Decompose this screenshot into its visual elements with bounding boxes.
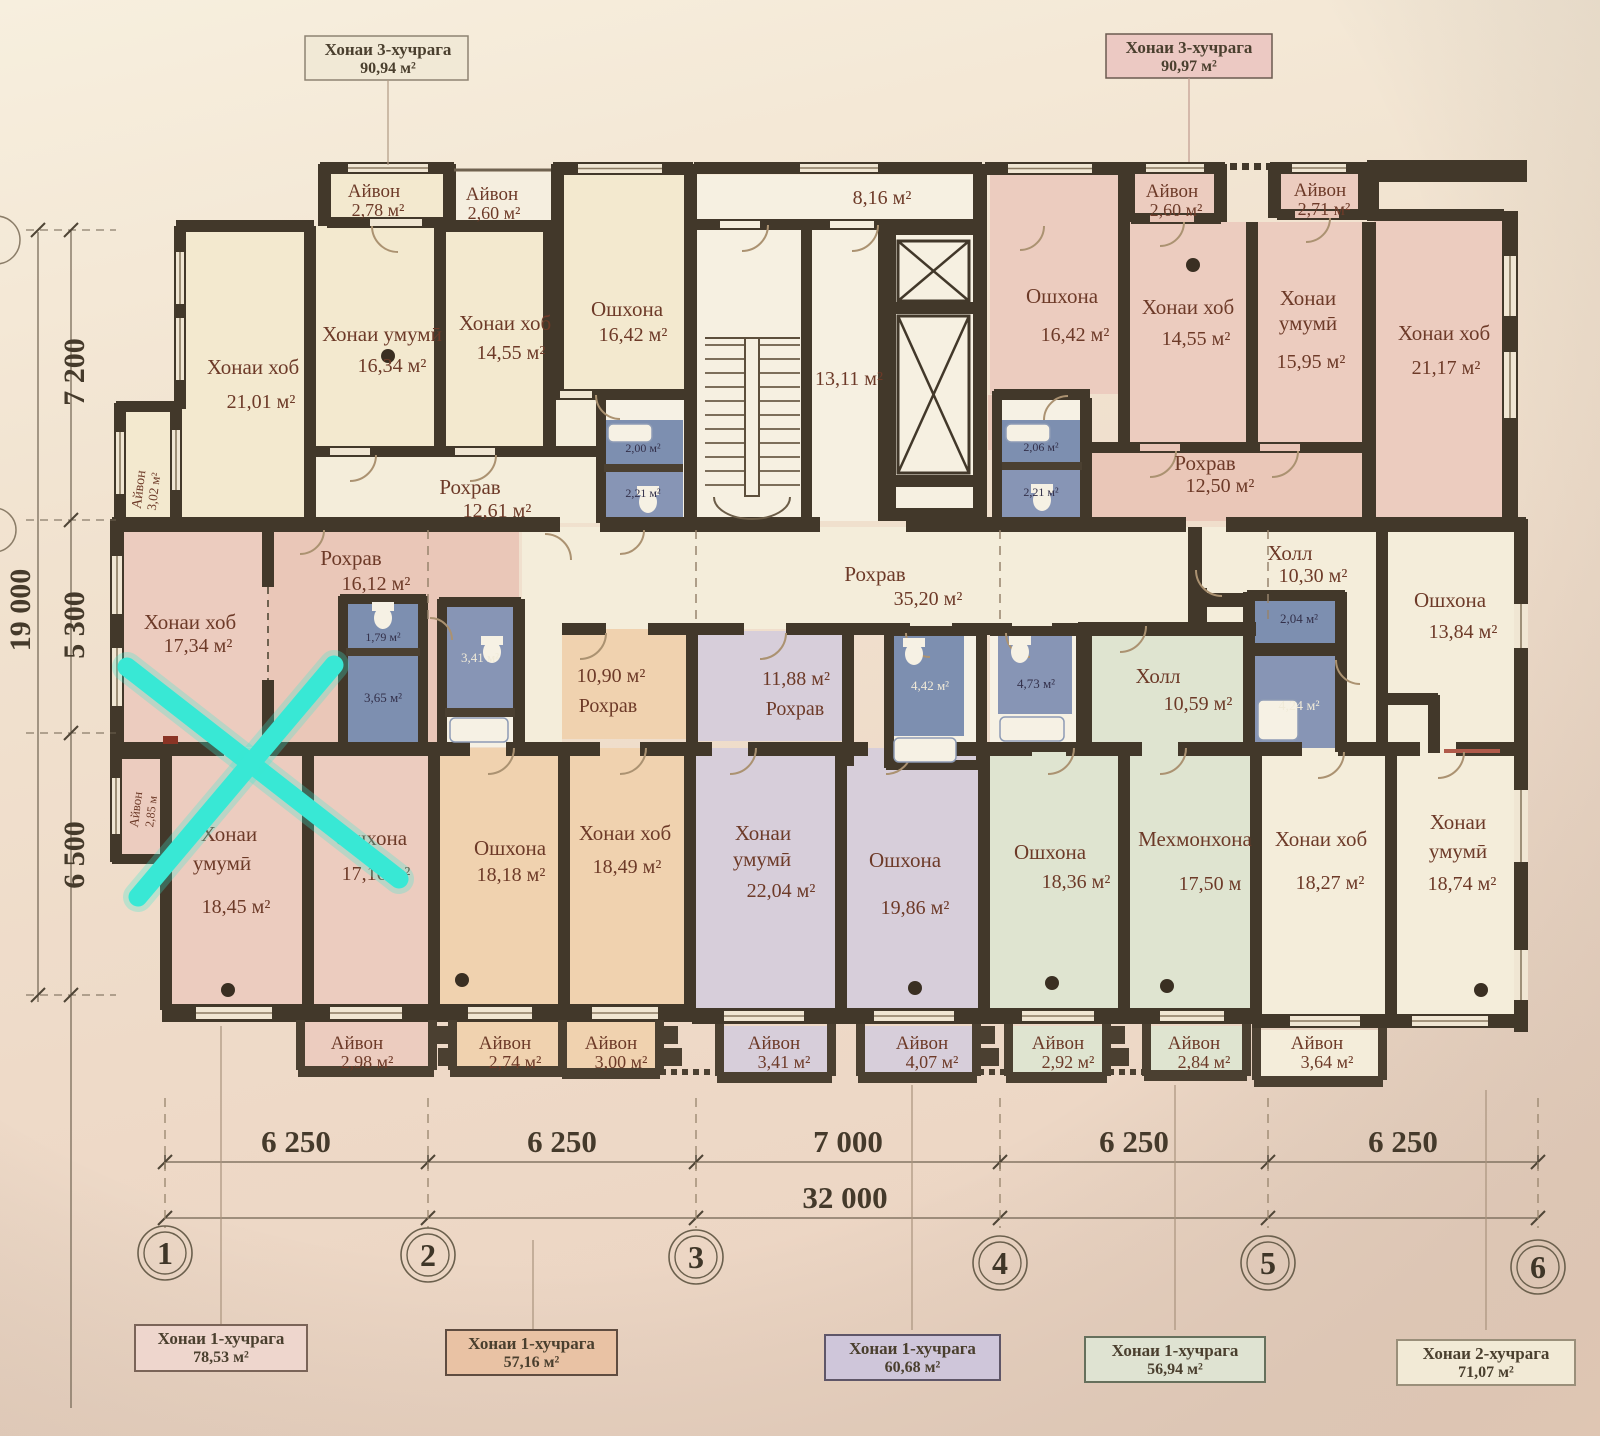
svg-text:Хонаи хоб: Хонаи хоб [1398,321,1490,345]
svg-text:Хонаи хоб: Хонаи хоб [144,610,236,634]
svg-text:17,50 м: 17,50 м [1179,873,1242,895]
svg-text:Мехмонхона: Мехмонхона [1138,827,1252,851]
svg-text:3,64 м²: 3,64 м² [1301,1052,1354,1072]
svg-text:2,00 м²: 2,00 м² [625,441,661,455]
svg-text:16,42 м²: 16,42 м² [599,324,668,346]
svg-text:21,17 м²: 21,17 м² [1412,357,1481,379]
svg-text:Хонаи: Хонаи [735,821,791,845]
svg-text:2,04 м²: 2,04 м² [1280,611,1318,626]
svg-text:6 250: 6 250 [1099,1124,1169,1159]
svg-text:90,97 м²: 90,97 м² [1161,58,1217,75]
svg-text:60,68 м²: 60,68 м² [885,1359,941,1376]
svg-text:5: 5 [1260,1245,1276,1281]
svg-text:2,60 м²: 2,60 м² [468,203,521,223]
svg-text:Холл: Холл [1267,541,1312,565]
svg-text:Айвон: Айвон [479,1033,531,1054]
svg-text:57,16 м²: 57,16 м² [504,1354,560,1371]
svg-text:Ошхона: Ошхона [591,297,664,321]
svg-text:4,42 м²: 4,42 м² [911,678,949,693]
svg-text:2,21 м²: 2,21 м² [625,486,661,500]
svg-text:18,18 м²: 18,18 м² [477,864,546,886]
svg-text:6 250: 6 250 [261,1124,331,1159]
svg-text:6 250: 6 250 [1368,1124,1438,1159]
svg-text:4,24 м²: 4,24 м² [1278,699,1319,714]
svg-text:Рохрав: Рохрав [439,475,500,499]
svg-text:2,84 м²: 2,84 м² [1178,1052,1231,1072]
svg-text:Айвон: Айвон [348,181,400,202]
svg-text:3,65 м²: 3,65 м² [364,690,402,705]
svg-text:Хонаи 1-хучрага: Хонаи 1-хучрага [849,1339,976,1358]
svg-text:Ошхона: Ошхона [1414,588,1487,612]
svg-text:Айвон: Айвон [1294,180,1346,201]
svg-text:Холл: Холл [1135,664,1180,688]
svg-text:Хонаи хоб: Хонаи хоб [579,821,671,845]
svg-text:Хонаи 1-хучрага: Хонаи 1-хучрага [468,1334,595,1353]
svg-text:Рохрав: Рохрав [766,698,824,720]
svg-text:11,88 м²: 11,88 м² [762,668,830,690]
svg-text:умумӣ: умумӣ [1429,839,1487,863]
svg-text:18,74 м²: 18,74 м² [1428,873,1497,895]
svg-text:2,74 м²: 2,74 м² [489,1052,542,1072]
svg-text:2,21 м²: 2,21 м² [1023,485,1059,499]
svg-text:6 500: 6 500 [58,821,91,889]
svg-text:2,92 м²: 2,92 м² [1042,1052,1095,1072]
svg-text:10,90 м²: 10,90 м² [577,665,646,687]
svg-text:22,04 м²: 22,04 м² [747,880,816,902]
svg-text:21,01 м²: 21,01 м² [227,391,296,413]
svg-text:Айвон: Айвон [466,184,518,205]
svg-text:7 200: 7 200 [58,338,91,406]
svg-text:2,71 м²: 2,71 м² [1298,199,1351,219]
svg-text:19 000: 19 000 [4,569,37,652]
svg-text:8,16 м²: 8,16 м² [853,187,912,209]
svg-text:Рохрав: Рохрав [1174,451,1235,475]
svg-text:18,45 м²: 18,45 м² [202,896,271,918]
svg-text:Хонаи 2-хучрага: Хонаи 2-хучрага [1423,1344,1550,1363]
svg-text:Айвон: Айвон [1168,1033,1220,1054]
svg-text:Айвон: Айвон [896,1033,948,1054]
svg-text:16,42 м²: 16,42 м² [1041,324,1110,346]
svg-text:Айвон: Айвон [1032,1033,1084,1054]
svg-text:1: 1 [157,1235,173,1271]
svg-text:Хонаи хоб: Хонаи хоб [1142,295,1234,319]
svg-text:Хонаи хоб: Хонаи хоб [459,311,551,335]
svg-text:Ошхона: Ошхона [869,848,942,872]
svg-text:Айвон: Айвон [331,1033,383,1054]
svg-text:2,78 м²: 2,78 м² [352,200,405,220]
svg-text:Ошхона: Ошхона [474,836,547,860]
svg-text:10,59 м²: 10,59 м² [1164,693,1233,715]
svg-text:14,55 м²: 14,55 м² [1162,328,1231,350]
svg-text:90,94 м²: 90,94 м² [360,60,416,77]
svg-text:17,34 м²: 17,34 м² [164,635,233,657]
svg-text:19,86 м²: 19,86 м² [881,897,950,919]
svg-text:16,34 м²: 16,34 м² [358,355,427,377]
svg-text:Хонаи 1-хучрага: Хонаи 1-хучрага [158,1329,285,1348]
svg-text:Рохрав: Рохрав [844,562,905,586]
svg-text:Айвон: Айвон [1291,1033,1343,1054]
svg-text:Хонаи умумӣ: Хонаи умумӣ [322,322,442,346]
svg-text:5 300: 5 300 [58,591,91,659]
svg-text:4,07 м²: 4,07 м² [906,1052,959,1072]
svg-text:35,20 м²: 35,20 м² [894,588,963,610]
svg-text:Ошхона: Ошхона [1014,840,1087,864]
svg-text:13,11 м²: 13,11 м² [815,368,883,390]
svg-text:Хонаи хоб: Хонаи хоб [207,355,299,379]
svg-text:6: 6 [1530,1249,1546,1285]
svg-text:Рохрав: Рохрав [320,546,381,570]
svg-text:13,84 м²: 13,84 м² [1429,621,1498,643]
svg-text:Айвон: Айвон [585,1033,637,1054]
svg-text:15,95 м²: 15,95 м² [1277,351,1346,373]
svg-text:7 000: 7 000 [813,1124,883,1159]
svg-text:10,30 м²: 10,30 м² [1279,565,1348,587]
svg-text:Хонаи 1-хучрага: Хонаи 1-хучрага [1112,1341,1239,1360]
svg-text:2: 2 [420,1237,436,1273]
svg-text:Хонаи: Хонаи [1280,286,1336,310]
svg-text:18,27 м²: 18,27 м² [1296,872,1365,894]
svg-text:12,61 м²: 12,61 м² [463,500,532,522]
svg-text:Хонаи хоб: Хонаи хоб [1275,827,1367,851]
svg-text:4: 4 [992,1245,1008,1281]
svg-text:3: 3 [688,1239,704,1275]
svg-text:1,79 м²: 1,79 м² [365,630,401,644]
svg-text:3,00 м²: 3,00 м² [595,1052,648,1072]
svg-text:умумӣ: умумӣ [1279,311,1337,335]
svg-text:Айвон: Айвон [748,1033,800,1054]
svg-text:14,55 м²: 14,55 м² [477,342,546,364]
svg-text:умумӣ: умумӣ [733,847,791,871]
svg-text:2,98 м²: 2,98 м² [341,1052,394,1072]
svg-text:18,36 м²: 18,36 м² [1042,871,1111,893]
svg-text:32 000: 32 000 [802,1180,887,1215]
svg-text:2,60 м²: 2,60 м² [1150,200,1203,220]
svg-text:Айвон: Айвон [1146,181,1198,202]
svg-text:18,49 м²: 18,49 м² [593,856,662,878]
svg-text:Рохрав: Рохрав [579,695,637,717]
svg-text:12,50 м²: 12,50 м² [1186,475,1255,497]
svg-text:4,73 м²: 4,73 м² [1017,676,1055,691]
svg-text:56,94 м²: 56,94 м² [1147,1361,1203,1378]
svg-text:6 250: 6 250 [527,1124,597,1159]
svg-text:16,12 м²: 16,12 м² [342,573,411,595]
svg-text:Хонаи 3-хучрага: Хонаи 3-хучрага [325,40,452,59]
svg-text:2,06 м²: 2,06 м² [1023,440,1059,454]
svg-text:71,07 м²: 71,07 м² [1458,1364,1514,1381]
svg-text:78,53 м²: 78,53 м² [193,1349,249,1366]
svg-text:Хонаи 3-хучрага: Хонаи 3-хучрага [1126,38,1253,57]
svg-text:3,41 м²: 3,41 м² [758,1052,811,1072]
svg-text:3,41 м²: 3,41 м² [461,650,499,665]
svg-text:Хонаи: Хонаи [1430,810,1486,834]
svg-text:Ошхона: Ошхона [1026,284,1099,308]
svg-text:умумӣ: умумӣ [193,851,251,875]
